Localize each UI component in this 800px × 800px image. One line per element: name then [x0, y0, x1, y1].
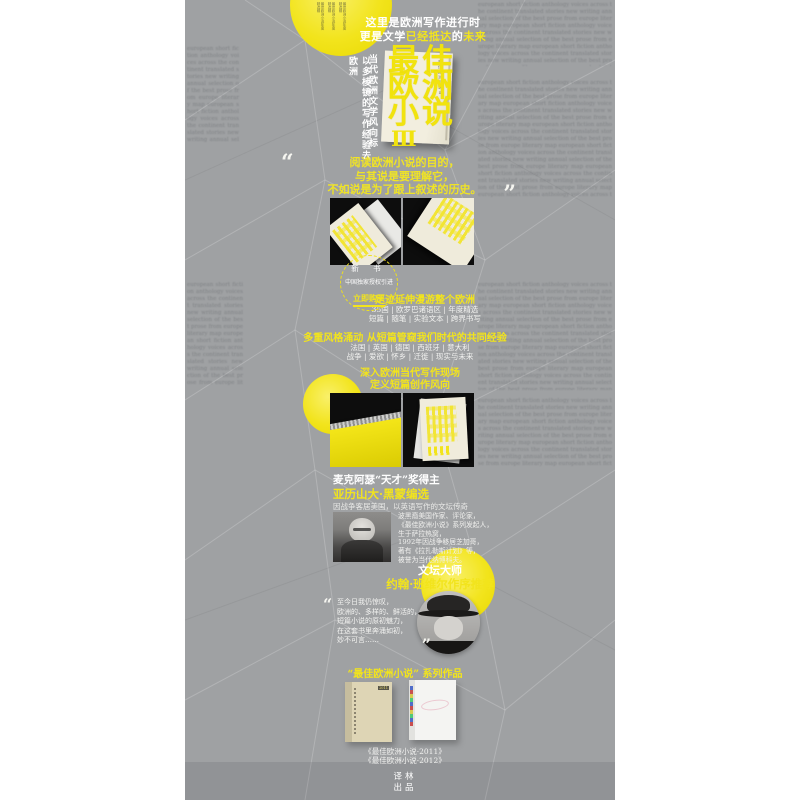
cover-title-marks: [426, 405, 458, 443]
feature-subline: 短篇 | 随笔 | 实验文本 | 跨界书写: [295, 313, 555, 324]
cover-barcode-stripes: [428, 446, 450, 456]
master-name: 约翰·班维尔作序推荐: [340, 576, 540, 592]
promo-badge: 新 书 中国独家授权引进 立即购买: [340, 255, 398, 311]
feature-subline: 战争 | 爱欲 | 怀乡 | 迁徙 | 现实与未来: [280, 351, 540, 362]
product-photo-row-2: [330, 393, 474, 467]
hero-title-row: 小说: [388, 100, 478, 126]
portrait-face: [434, 616, 463, 640]
quote-line: 欧洲的、多样的、鲜活的，: [337, 608, 437, 618]
cover-title-marks: [428, 198, 474, 245]
portrait-glasses: [353, 528, 371, 531]
editor-bio: 波黑裔美国作家、评论家， 《最佳欧洲小说》系列发起人， 生于萨拉热窝， 1992…: [398, 512, 528, 565]
close-quote-icon: ”: [422, 640, 431, 650]
tagline-segment-highlight: 已经抵达: [406, 30, 452, 43]
tagline-segment: 更是文学: [360, 30, 406, 43]
series-caption-2: 《最佳欧洲小说·2012》: [295, 755, 515, 766]
close-quote-icon: ”: [503, 189, 516, 199]
series-book-label: 2011: [378, 686, 389, 690]
product-photo-front-cover: [403, 393, 474, 467]
series-heading: “最佳欧洲小说” 系列作品: [295, 665, 515, 680]
hero-title-graphic: 最佳 欧洲 小说: [388, 48, 478, 126]
open-quote-icon: “: [323, 600, 332, 610]
tagline-line2: 更是文学已经抵达的未来: [313, 30, 533, 44]
series-book-2011: 2011: [345, 682, 392, 742]
book-cover-shape: [419, 397, 468, 461]
quote-line: 短篇小说的原初魅力，: [337, 617, 437, 627]
editor-award-text: 麦克阿瑟“天才”奖得主: [333, 472, 440, 487]
tagline-line1: 这里是欧洲写作进行时: [313, 16, 533, 30]
yellow-cover-corner: [330, 415, 401, 467]
book-spine-strip: [330, 410, 401, 432]
tagline-segment: 的: [452, 30, 464, 43]
cover-scribble-mark: [420, 698, 449, 712]
product-photo-row-1: [330, 198, 474, 265]
promo-strip: european short fiction anthology voices …: [185, 0, 615, 800]
quote-line: 不如说是为了跟上叙述的历史。: [297, 183, 512, 197]
editor-name: 亚历山大·黑蒙编选: [333, 486, 429, 502]
product-photo-corner-closeup: [403, 198, 474, 265]
quote-line: 至今日我仍惊叹，: [337, 598, 437, 608]
portrait-scarf: [341, 540, 383, 562]
banner-canvas: european short fiction anthology voices …: [0, 0, 800, 800]
feature-heading-3-line2: 定义短篇创作风向: [280, 376, 540, 391]
badge-line1: 新 书: [341, 263, 397, 274]
tagline-segment-highlight: 未来: [463, 30, 486, 43]
open-quote-icon: “: [281, 158, 294, 168]
publisher-imprint: 出品: [295, 781, 515, 793]
badge-line2: 中国独家授权引进: [343, 276, 395, 285]
spine-text-marks: [354, 688, 356, 734]
headline-taglines: 这里是欧洲写作进行时 更是文学已经抵达的未来: [313, 16, 533, 43]
bio-line: 《最佳欧洲小说》系列发起人，: [398, 521, 528, 530]
ghost-text-block: european short fiction anthology voices …: [187, 46, 239, 144]
bio-line: 著有《拉扎勒斯计划》等，: [398, 547, 528, 556]
editor-portrait-photo: [333, 512, 391, 562]
quote-block-1: “ 阅读欧洲小说的目的， 与其说是要理解它， 不如说是为了跟上叙述的历史。 ”: [297, 156, 512, 197]
bio-line: 波黑裔美国作家、评论家，: [398, 512, 528, 521]
quote-line: 阅读欧洲小说的目的，: [297, 156, 512, 170]
quote-line: 与其说是要理解它，: [297, 170, 512, 184]
spine-color-stripes: [410, 686, 413, 726]
product-photo-yellow-corner: [330, 393, 401, 467]
buy-now-link[interactable]: 立即购买: [353, 293, 385, 307]
ghost-text-block: european short fiction anthology voices …: [187, 282, 243, 386]
book-cover-shape: [407, 198, 474, 265]
bio-line: 1992年因战争移居芝加哥，: [398, 538, 528, 547]
hero-title-roman-numeral: Ⅲ: [391, 126, 415, 151]
ghost-text-block: european short fiction anthology voices …: [478, 398, 612, 468]
editor-note: 因战争客居美国，以英语写作的文坛传奇: [333, 501, 468, 512]
quote-block-2: “ 至今日我仍惊叹， 欧洲的、多样的、鲜活的， 短篇小说的原初魅力， 在这套书里…: [337, 598, 437, 646]
vertical-tagline-left: 以多棱镜的写作经验去欧洲: [346, 56, 372, 164]
series-book-2012: [409, 680, 456, 740]
